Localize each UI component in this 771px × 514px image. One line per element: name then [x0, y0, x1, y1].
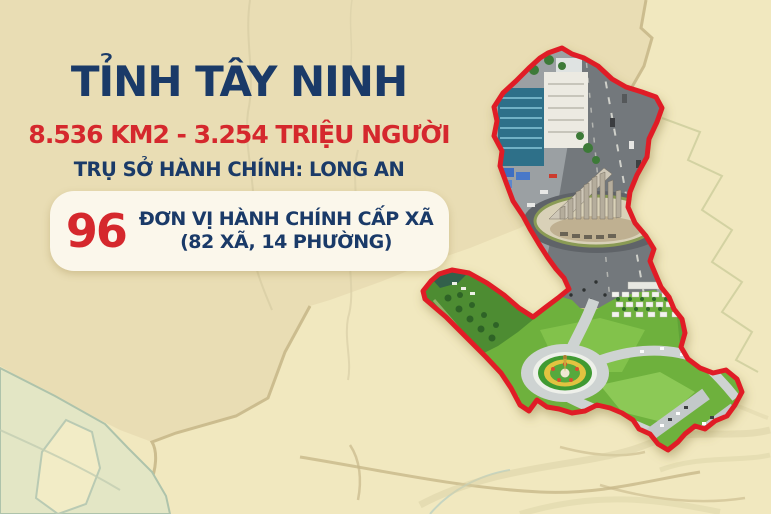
- area-population-stats: 8.536 KM2 - 3.254 TRIỆU NGƯỜI: [8, 120, 470, 149]
- admin-units-label-line1: ĐƠN VỊ HÀNH CHÍNH CẤP XÃ: [139, 208, 433, 230]
- admin-units-label-line2: (82 XÃ, 14 PHƯỜNG): [180, 231, 392, 253]
- text-panel: TỈNH TÂY NINH 8.536 KM2 - 3.254 TRIỆU NG…: [8, 0, 470, 181]
- admin-units-count: 96: [66, 208, 126, 254]
- province-title: TỈNH TÂY NINH: [8, 60, 470, 104]
- admin-center-line: TRỤ SỞ HÀNH CHÍNH: LONG AN: [8, 158, 470, 181]
- infographic-canvas: TỈNH TÂY NINH 8.536 KM2 - 3.254 TRIỆU NG…: [0, 0, 771, 514]
- admin-units-label: ĐƠN VỊ HÀNH CHÍNH CẤP XÃ (82 XÃ, 14 PHƯỜ…: [139, 208, 433, 254]
- admin-units-info-box: 96 ĐƠN VỊ HÀNH CHÍNH CẤP XÃ (82 XÃ, 14 P…: [50, 191, 449, 271]
